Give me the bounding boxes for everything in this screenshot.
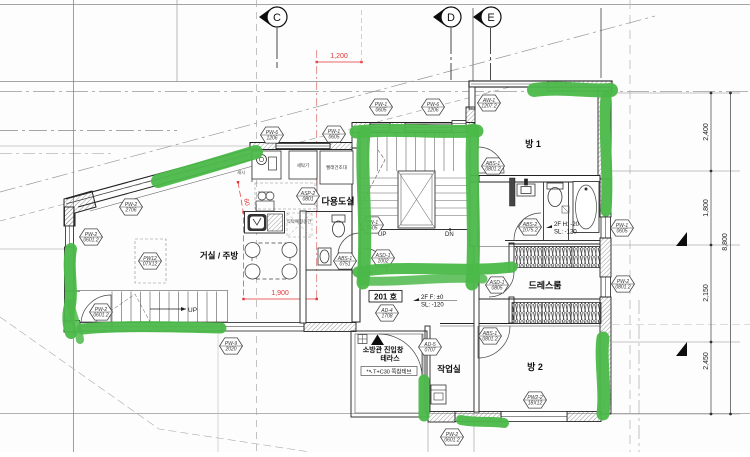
svg-text:18X12: 18X12 <box>528 401 543 407</box>
svg-text:빨래건조대: 빨래건조대 <box>326 164 347 171</box>
svg-text:1708: 1708 <box>381 314 392 320</box>
svg-text:2,400: 2,400 <box>703 123 710 141</box>
svg-text:작업실: 작업실 <box>437 364 461 374</box>
svg-text:0801.2: 0801.2 <box>615 285 631 291</box>
svg-text:0801: 0801 <box>302 197 313 203</box>
svg-text:방 2: 방 2 <box>527 361 543 372</box>
svg-text:SL: -120: SL: -120 <box>421 303 444 309</box>
svg-text:2,150: 2,150 <box>703 284 710 302</box>
svg-text:E: E <box>487 12 494 24</box>
svg-text:테라스: 테라스 <box>380 354 400 363</box>
svg-text:0801.2: 0801.2 <box>482 337 498 343</box>
svg-text:1207.2: 1207.2 <box>481 104 497 110</box>
svg-text:새시: 새시 <box>237 169 245 176</box>
svg-text:1206: 1206 <box>427 108 438 114</box>
svg-text:UP: UP <box>378 232 386 238</box>
svg-text:방 1: 방 1 <box>525 138 541 149</box>
svg-text:07X12: 07X12 <box>143 262 158 268</box>
svg-text:DN: DN <box>445 232 454 238</box>
svg-text:0605: 0605 <box>616 229 627 235</box>
svg-text:2F H: -20: 2F H: -20 <box>554 222 580 228</box>
svg-text:드레스룸: 드레스룸 <box>528 280 561 291</box>
svg-text:201 호: 201 호 <box>374 292 398 302</box>
svg-text:UP: UP <box>188 307 197 314</box>
svg-text:2F F: ±0: 2F F: ±0 <box>421 295 444 301</box>
svg-text:0601.2: 0601.2 <box>93 313 109 319</box>
svg-text:0801.2: 0801.2 <box>485 167 501 173</box>
svg-text:0601.2: 0601.2 <box>444 438 460 444</box>
svg-text:0707: 0707 <box>424 348 435 354</box>
svg-text:0751: 0751 <box>339 262 350 268</box>
svg-text:소방관 진입창: 소방관 진입창 <box>363 345 404 354</box>
svg-text:1075.2: 1075.2 <box>522 228 538 234</box>
svg-text:D: D <box>447 12 455 24</box>
svg-text:SL: -120: SL: -120 <box>554 230 577 236</box>
svg-text:거실 / 주방: 거실 / 주방 <box>200 251 239 261</box>
svg-text:식탁예정공간: 식탁예정공간 <box>287 218 312 225</box>
svg-text:0605: 0605 <box>328 135 339 141</box>
svg-text:C: C <box>273 12 281 24</box>
svg-text:*↖T+C30 쪽참테브: *↖T+C30 쪽참테브 <box>366 368 411 376</box>
svg-text:다용도실: 다용도실 <box>321 196 354 207</box>
svg-text:1206: 1206 <box>266 136 277 142</box>
svg-text:1,200: 1,200 <box>330 53 348 60</box>
svg-text:세탁기: 세탁기 <box>297 162 309 169</box>
svg-text:2706: 2706 <box>124 208 136 214</box>
svg-text:1,800: 1,800 <box>703 199 710 217</box>
svg-text:0601.2: 0601.2 <box>83 238 99 244</box>
svg-text:2020: 2020 <box>224 347 236 353</box>
svg-text:1,900: 1,900 <box>271 290 289 297</box>
svg-text:2,450: 2,450 <box>703 352 710 370</box>
svg-text:0805: 0805 <box>491 286 502 292</box>
svg-text:8,800: 8,800 <box>722 233 729 251</box>
svg-text:0605: 0605 <box>375 108 386 114</box>
